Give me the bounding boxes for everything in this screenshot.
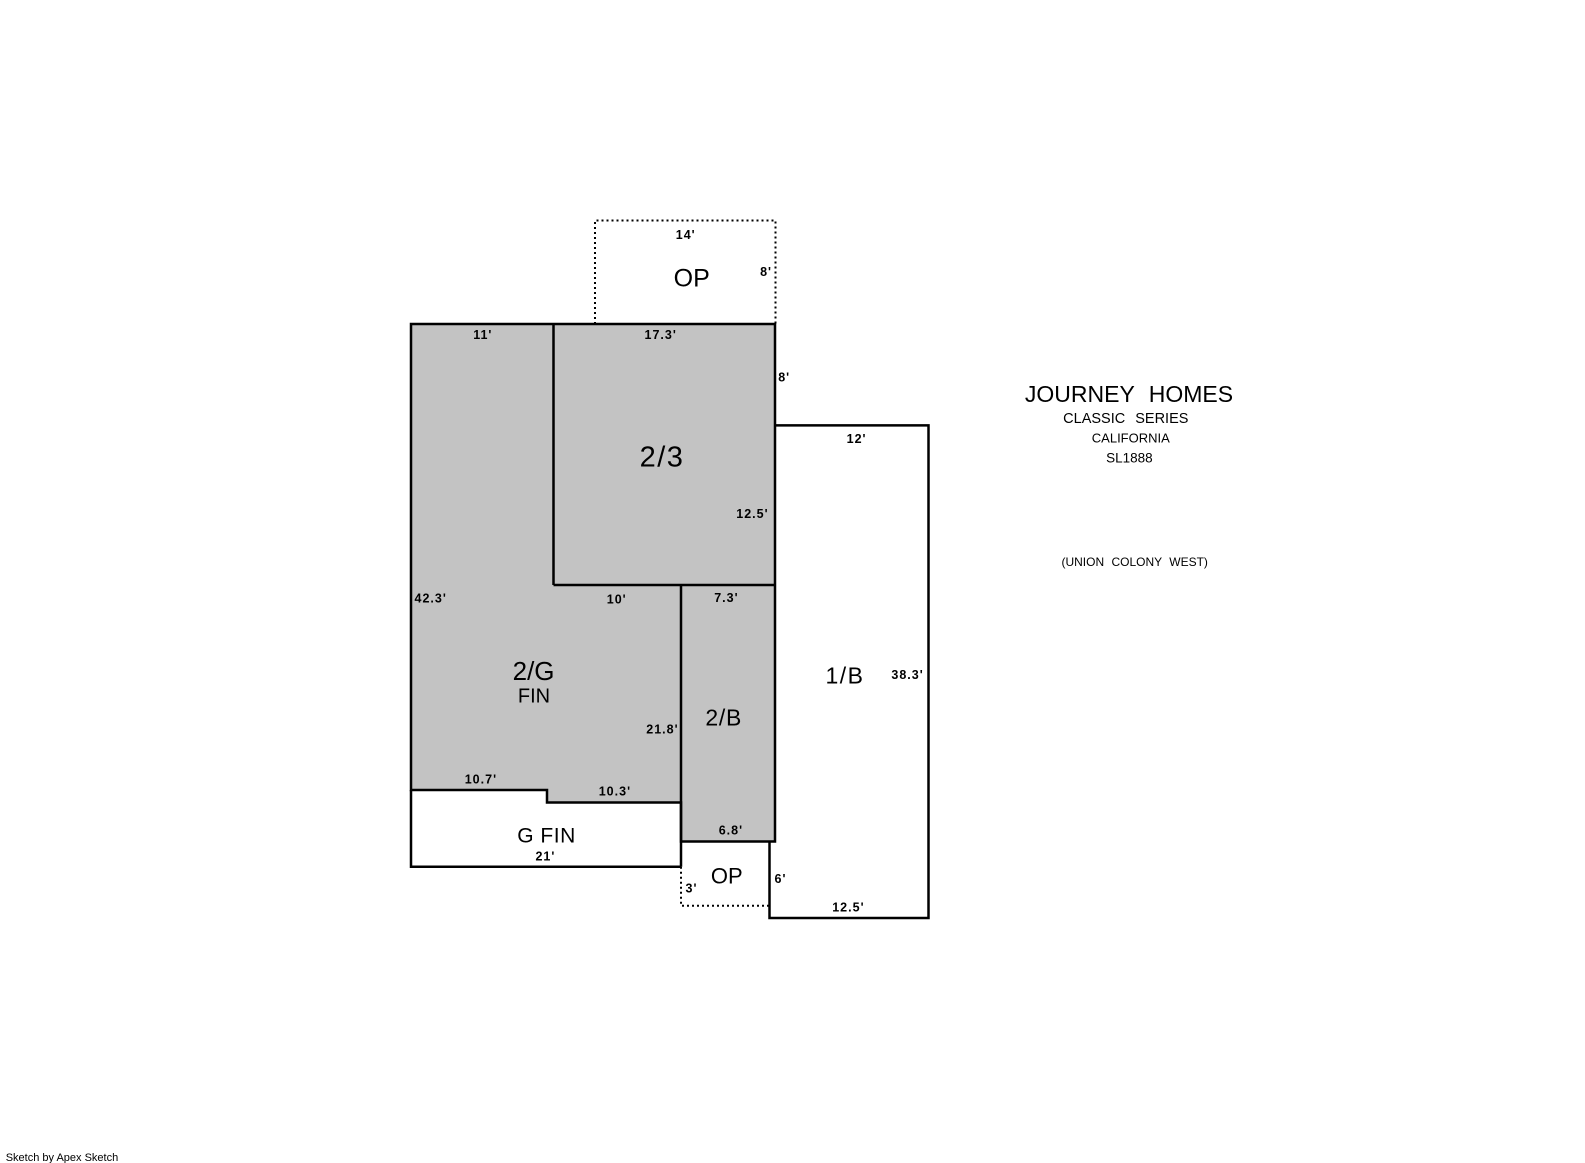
svg-text:21.8': 21.8' [646, 723, 678, 737]
svg-text:2/3: 2/3 [640, 442, 685, 474]
svg-text:(UNION COLONY WEST): (UNION COLONY WEST) [1061, 555, 1207, 569]
svg-text:CLASSIC SERIES: CLASSIC SERIES [1063, 411, 1188, 427]
svg-text:2/G: 2/G [513, 656, 555, 686]
svg-text:OP: OP [674, 264, 710, 292]
svg-text:3': 3' [686, 881, 698, 895]
svg-text:Sketch by Apex Sketch: Sketch by Apex Sketch [6, 1152, 119, 1163]
svg-text:6.8': 6.8' [719, 824, 743, 838]
svg-text:12': 12' [847, 432, 867, 446]
svg-text:7.3': 7.3' [714, 591, 738, 605]
svg-text:10.7': 10.7' [465, 773, 497, 787]
svg-text:8': 8' [760, 265, 772, 279]
svg-text:6': 6' [775, 872, 787, 886]
svg-text:1/B: 1/B [825, 662, 864, 688]
svg-text:11': 11' [473, 328, 492, 342]
svg-text:38.3': 38.3' [891, 668, 923, 682]
svg-text:10.3': 10.3' [599, 784, 631, 798]
svg-text:8': 8' [778, 370, 790, 384]
svg-text:G FIN: G FIN [517, 824, 576, 847]
svg-text:14': 14' [676, 228, 696, 242]
svg-text:CALIFORNIA: CALIFORNIA [1092, 431, 1170, 446]
svg-text:12.5': 12.5' [832, 901, 864, 915]
svg-text:FIN: FIN [518, 685, 550, 707]
svg-text:OP: OP [711, 864, 743, 889]
svg-text:21': 21' [535, 849, 555, 863]
svg-text:10': 10' [607, 592, 627, 606]
svg-text:12.5': 12.5' [736, 507, 768, 521]
svg-text:42.3': 42.3' [415, 591, 447, 605]
svg-text:17.3': 17.3' [645, 328, 677, 342]
svg-text:2/B: 2/B [705, 705, 742, 731]
svg-text:JOURNEY HOMES: JOURNEY HOMES [1025, 381, 1233, 407]
svg-text:SL1888: SL1888 [1106, 451, 1153, 466]
